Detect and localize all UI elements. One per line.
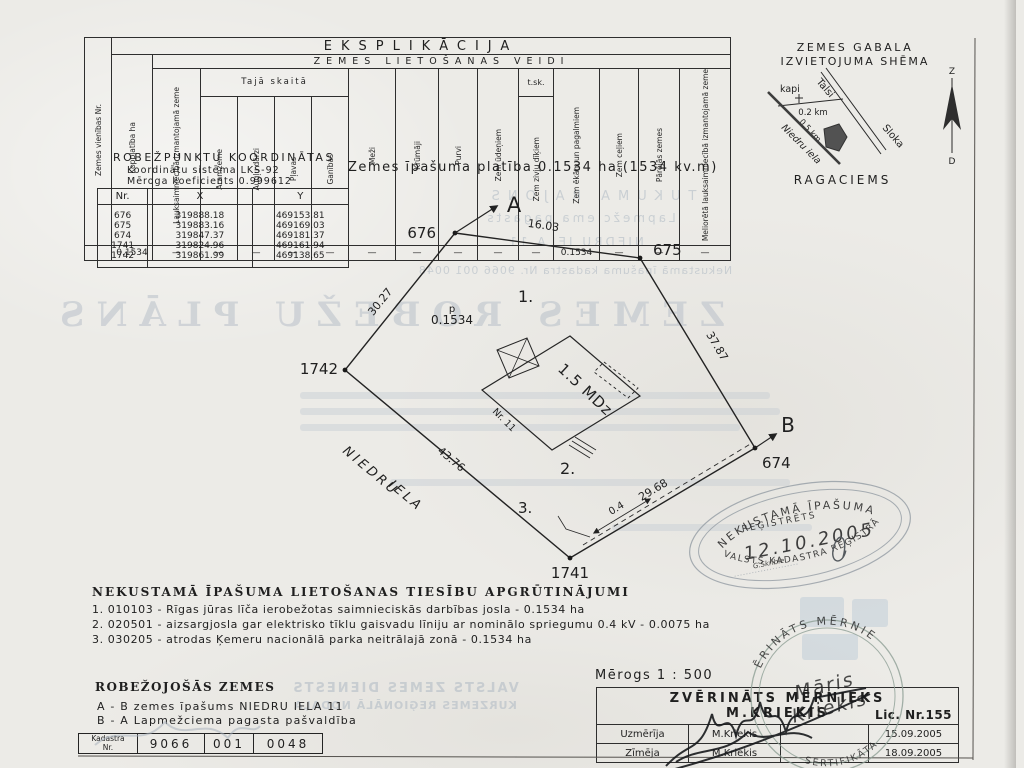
col-header-buildings-yards: Zem ēkām un pagalmiem bbox=[554, 69, 600, 246]
surveyor-title: ZVĒRINĀTS MĒRNIEKS bbox=[597, 691, 958, 706]
cadastre-number-table: Kadastra Nr. 9066 001 0048 bbox=[78, 733, 323, 754]
cadastre-part-3: 0048 bbox=[254, 734, 323, 754]
direction-arrow-b bbox=[755, 434, 776, 448]
map-scale: Mērogs 1 : 500 bbox=[595, 668, 713, 683]
cell: 469161.94 bbox=[252, 241, 348, 251]
street-name-word1: NIEDRU bbox=[339, 444, 401, 499]
compass: Z D bbox=[943, 67, 961, 167]
table-row: 674 319847.37 469181.37 bbox=[98, 231, 349, 241]
cell: 319861.99 bbox=[148, 251, 252, 268]
col-header-forests: Meži bbox=[349, 69, 396, 246]
bordering-lands-title: ROBEŽOJOŠĀS ZEMES bbox=[95, 680, 275, 694]
col-header-roads: Zem ceļiem bbox=[600, 69, 639, 246]
coordinate-system-label: Koordinātu sistēma LKS-92 bbox=[127, 165, 280, 176]
col-header-x: X bbox=[148, 189, 252, 205]
vertex-label-1741: 1741 bbox=[551, 564, 589, 582]
cell: — bbox=[600, 246, 639, 261]
cadastre-part-2: 001 bbox=[205, 734, 254, 754]
surveyor-table: ZVĒRINĀTS MĒRNIEKS M.KRIEKIS Lic. Nr.155… bbox=[596, 687, 959, 763]
schema-title-line1: ZEMES GABALA bbox=[745, 41, 965, 54]
road-destination-talsi: Talsi bbox=[813, 76, 836, 100]
cell: 319847.37 bbox=[148, 231, 252, 241]
table-row: 676 319888.18 469153.81 bbox=[98, 205, 349, 222]
cell: 319883.16 bbox=[148, 221, 252, 231]
vertex-label-674: 674 bbox=[762, 454, 791, 472]
signature-cell bbox=[781, 744, 869, 763]
location-schema-sketch: Talsi Sloka kapi 0.2 km 0.5 km Niedru ie… bbox=[768, 68, 906, 167]
table-row: Uzmērīja M.Kriekis 15.09.2005 bbox=[597, 725, 959, 744]
ghost-text-plan-title: ZEMES ROBEŽU PLĀNS bbox=[225, 295, 725, 335]
ghost-paragraph-line bbox=[300, 392, 770, 399]
ghost-paragraph-line bbox=[300, 424, 740, 431]
registry-stamp-top-text: NEKUSTAMĀ ĪPAŠUMA bbox=[711, 487, 881, 552]
cadastre-label: Kadastra Nr. bbox=[79, 734, 138, 754]
col-header-swamps: Purvi bbox=[439, 69, 478, 246]
cell: 469138.65 bbox=[252, 251, 348, 268]
licence-number: Lic. Nr.155 bbox=[875, 708, 952, 722]
compass-needle-icon bbox=[943, 84, 961, 130]
offset-dimension-value: 0.4 bbox=[607, 500, 626, 518]
name-cell: M.Kriekis bbox=[689, 744, 781, 763]
cell: — bbox=[349, 246, 396, 261]
bordering-item-2: B - A Lapmežciema pagasta pašvaldība bbox=[97, 714, 357, 727]
zone-label-3: 3. bbox=[518, 499, 532, 517]
cadastre-label-line2: Nr. bbox=[80, 744, 136, 753]
cell: — bbox=[519, 246, 554, 261]
name-cell: M.Kriekis bbox=[689, 725, 781, 744]
ghost-text-cadastre: Nekustamā īpašuma kadastra Nr. 9066 001 … bbox=[405, 264, 745, 277]
frame-right bbox=[973, 38, 975, 760]
table-row: Kopplatība ha ZEMES LIETOŠANAS VEIDI bbox=[85, 55, 731, 69]
edge-length-1741-1742: 43.76 bbox=[435, 444, 467, 474]
scale-coefficient-label: Mēroga koeficients 0.999612 bbox=[127, 176, 292, 187]
schema-street-line bbox=[768, 92, 840, 164]
schema-street-name: Niedru iela bbox=[779, 122, 823, 166]
table-row: 1741 319824.96 469161.94 bbox=[98, 241, 349, 251]
table-row: Kadastra Nr. 9066 001 0048 bbox=[79, 734, 323, 754]
cell: 319824.96 bbox=[148, 241, 252, 251]
registry-stamp-registered-text: REĢISTRĒTS bbox=[741, 510, 818, 535]
cell: — bbox=[639, 246, 680, 261]
cell: 1741 bbox=[98, 241, 148, 251]
role-cell: Zīmēja bbox=[597, 744, 689, 763]
cell: 1742 bbox=[98, 251, 148, 268]
encumbrance-item-1: 1. 010103 - Rīgas jūras līča ierobežotas… bbox=[92, 603, 585, 616]
subheader-tsk: t.sk. bbox=[519, 69, 554, 97]
ghost-blue-mark bbox=[800, 597, 844, 627]
cadastre-part-1: 9066 bbox=[138, 734, 205, 754]
schema-parcel-marker bbox=[824, 124, 847, 151]
cell: — bbox=[478, 246, 519, 261]
village-name: RAGACIEMS bbox=[755, 173, 930, 187]
neighbour-point-b: B bbox=[781, 413, 795, 437]
schema-title-line2: IZVIETOJUMA SHĒMA bbox=[745, 55, 965, 68]
cell: 674 bbox=[98, 231, 148, 241]
subheader-taja-skaita: Tajā skaitā bbox=[201, 69, 349, 97]
registry-signature-squiggle bbox=[830, 537, 848, 562]
svg-text:NEKUSTAMĀ ĪPAŠUMA: NEKUSTAMĀ ĪPAŠUMA bbox=[711, 487, 881, 552]
cell: 469153.81 bbox=[252, 205, 348, 222]
signature-cell bbox=[781, 725, 869, 744]
cell: 469181.37 bbox=[252, 231, 348, 241]
table-header-row: ZVĒRINĀTS MĒRNIEKS M.KRIEKIS Lic. Nr.155 bbox=[597, 688, 959, 725]
ghost-text-vzd: VALSTS ZEMES DIENESTS bbox=[245, 681, 565, 696]
vertex-label-1742: 1742 bbox=[300, 360, 338, 378]
cell: — bbox=[680, 246, 731, 261]
cell: — bbox=[396, 246, 439, 261]
date-cell: 15.09.2005 bbox=[869, 725, 959, 744]
date-cell: 18.09.2005 bbox=[869, 744, 959, 763]
coordinates-title: ROBEŽPUNKTU KOORDINĀTAS bbox=[113, 151, 335, 164]
road-destination-sloka: Sloka bbox=[880, 123, 906, 151]
ghost-paragraph-line bbox=[612, 524, 812, 531]
encumbrances-title: NEKUSTAMĀ ĪPAŠUMA LIETOŠANAS TIESĪBU APG… bbox=[92, 585, 630, 599]
zone-label-2: 2. bbox=[560, 459, 575, 478]
col-header-under-water: Zem ūdeņiem bbox=[478, 69, 519, 246]
distance-05km: 0.5 km bbox=[798, 117, 823, 144]
ghost-paragraph-line bbox=[390, 479, 790, 486]
table-row: 675 319883.16 469169.03 bbox=[98, 221, 349, 231]
col-header-other-land: Pārējās zemes bbox=[639, 69, 680, 246]
cell: 0.1534 bbox=[554, 246, 600, 261]
role-cell: Uzmērīja bbox=[597, 725, 689, 744]
table-row: Zemes vienības Nr. EKSPLIKĀCIJA bbox=[85, 38, 731, 55]
distance-02km: 0.2 km bbox=[798, 108, 827, 118]
cell: 469169.03 bbox=[252, 221, 348, 231]
bordering-item-1: A - B zemes īpašums NIEDRU IELA 11 bbox=[97, 700, 344, 713]
ghost-blue-mark bbox=[802, 634, 858, 660]
zone3-leader-line bbox=[558, 516, 590, 537]
paper-edge-shadow bbox=[1004, 0, 1016, 768]
scanned-land-plan-sheet: TUKUMA RAJONS Lapmežciema pagasts NIEDRU… bbox=[0, 0, 1024, 768]
surveyor-header: ZVĒRINĀTS MĒRNIEKS M.KRIEKIS Lic. Nr.155 bbox=[597, 688, 959, 725]
col-header-shrubs: Krūmāji bbox=[396, 69, 439, 246]
cell: — bbox=[439, 246, 478, 261]
col-header-nr: Nr. bbox=[98, 189, 148, 205]
table-row: Lauksaimniecībā izmantojamā zeme Tajā sk… bbox=[85, 69, 731, 97]
explication-subtitle: ZEMES LIETOŠANAS VEIDI bbox=[153, 55, 731, 69]
ghost-blue-mark bbox=[852, 599, 888, 627]
explication-title: EKSPLIKĀCIJA bbox=[112, 38, 731, 55]
property-area-statement: Zemes īpašuma platība 0.1534 ha (1534 kv… bbox=[348, 160, 718, 175]
table-row: Zīmēja M.Kriekis 18.09.2005 bbox=[597, 744, 959, 763]
cemetery-label: kapi bbox=[780, 84, 800, 95]
registry-clerk-name: G.Skrible bbox=[752, 557, 785, 571]
coordinates-table: Nr. X Y 676 319888.18 469153.81 675 3198… bbox=[97, 188, 349, 268]
cell: 675 bbox=[98, 221, 148, 231]
encumbrance-item-3: 3. 030205 - atrodas Ķemeru nacionālā par… bbox=[92, 633, 532, 646]
table-header-row: Nr. X Y bbox=[98, 189, 349, 205]
cemetery-cross-icon bbox=[795, 94, 803, 103]
ghost-paragraph-line bbox=[300, 408, 780, 415]
table-row: 1742 319861.99 469138.65 bbox=[98, 251, 349, 268]
cell: 319888.18 bbox=[148, 205, 252, 222]
compass-south-label: D bbox=[949, 157, 956, 167]
col-header-ameliorated: Meliorētā lauksaimniecībā izmantojamā ze… bbox=[680, 69, 731, 246]
compass-north-label: Z bbox=[949, 67, 955, 77]
encumbrance-item-2: 2. 020501 - aizsargjosla gar elektrisko … bbox=[92, 618, 710, 631]
cell: 676 bbox=[98, 205, 148, 222]
col-header-y: Y bbox=[252, 189, 348, 205]
